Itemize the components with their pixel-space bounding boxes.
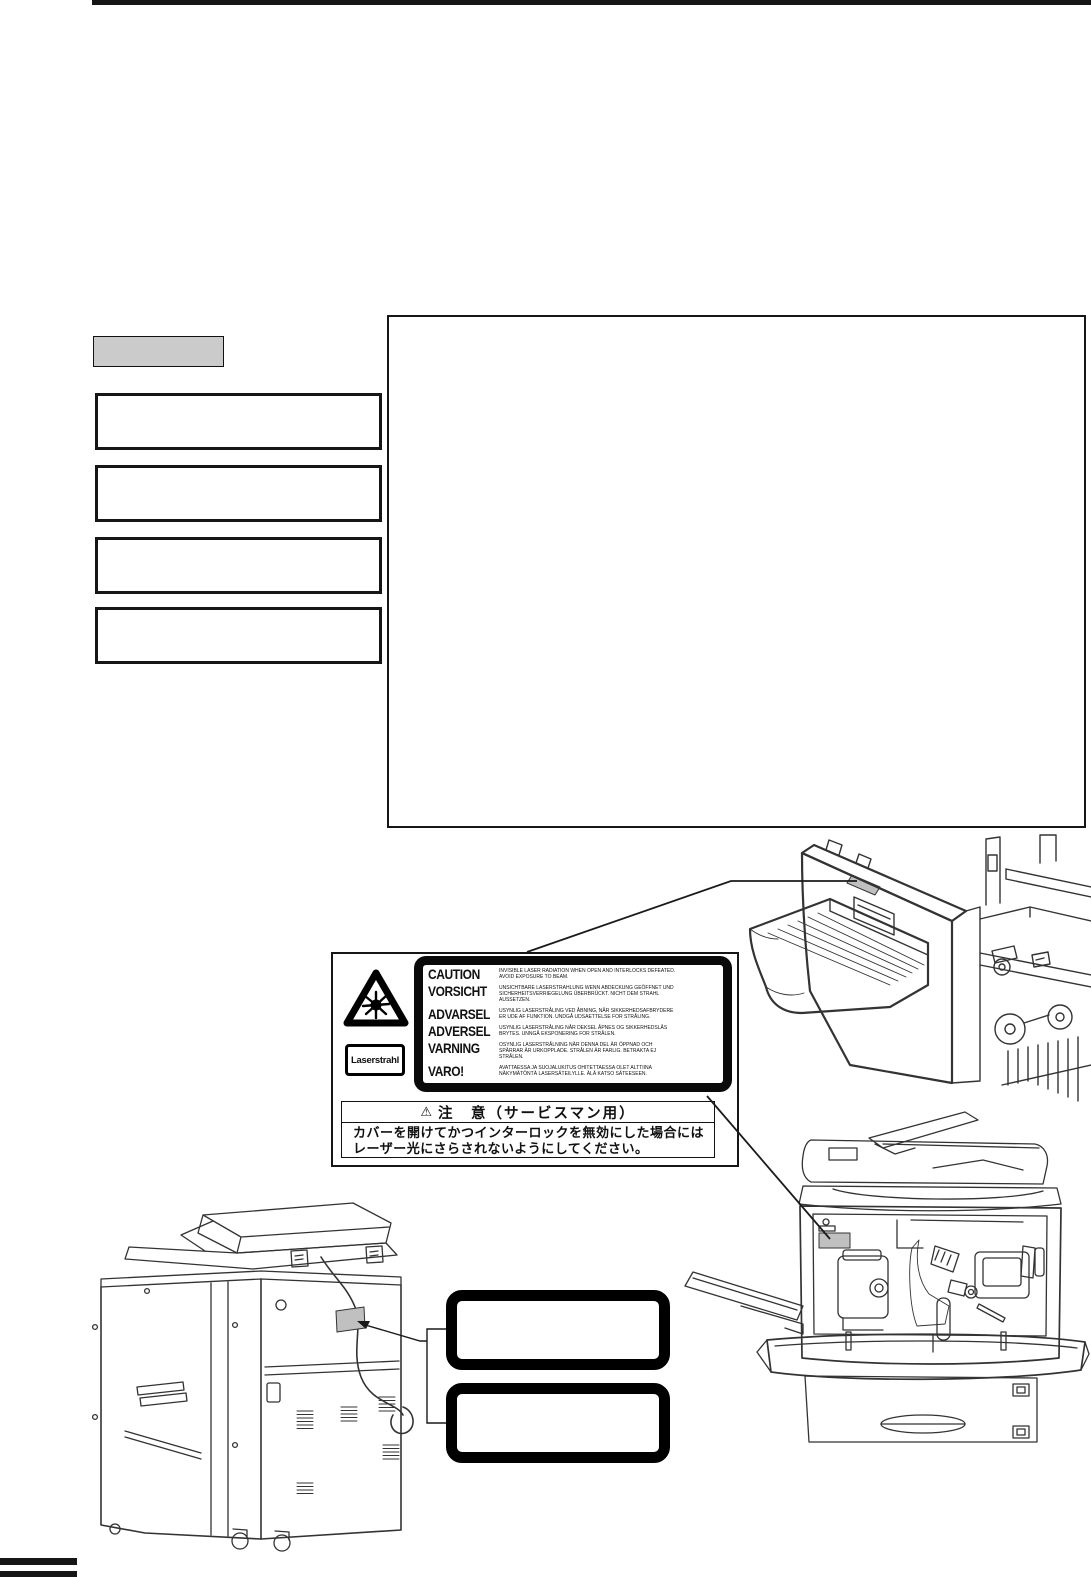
callout-box-2 <box>446 1383 670 1463</box>
service-notice-box: ⚠ 注 意（サービスマン用） カバーを開けてかつインターロックを無効にした場合に… <box>341 1101 715 1158</box>
callout-box-1 <box>446 1290 670 1370</box>
finisher-unit-drawing <box>740 833 1091 1105</box>
label-word: VARNING <box>428 1042 496 1057</box>
label-word: ADVERSEL <box>428 1025 496 1040</box>
label-word: VARO! <box>428 1065 496 1080</box>
label-desc: UNSICHTBARE LASERSTRAHLUNG WENN ABDECKUN… <box>499 985 677 1004</box>
callout-bracket <box>427 1329 446 1423</box>
text-placeholder-box-4 <box>95 607 382 664</box>
label-desc: USYNLIG LASERSTRÅLING VED ÅBNING, NÅR SI… <box>499 1008 677 1021</box>
service-notice-header: ⚠ 注 意（サービスマン用） <box>342 1102 714 1123</box>
laser-caution-label: CAUTION INVISIBLE LASER RADIATION WHEN O… <box>414 956 732 1092</box>
manual-page: Laserstrahl CAUTION INVISIBLE LASER RADI… <box>0 0 1091 1577</box>
label-desc: INVISIBLE LASER RADIATION WHEN OPEN AND … <box>499 968 677 981</box>
copier-front-view-drawing <box>683 1108 1091 1448</box>
copier-rear-view-drawing <box>85 1195 425 1555</box>
label-word: ADVARSEL <box>428 1008 496 1023</box>
label-row: ADVERSEL USYNLIG LASERSTRÅLING NÅR DEKSE… <box>428 1025 721 1038</box>
footer-rule-1 <box>0 1558 77 1565</box>
text-placeholder-box-3 <box>95 537 382 594</box>
label-row: VORSICHT UNSICHTBARE LASERSTRAHLUNG WENN… <box>428 985 721 1004</box>
label-word: VORSICHT <box>428 985 496 1000</box>
label-row: VARNING OSYNLIG LASERSTRÅLNING NÄR DENNA… <box>428 1042 721 1061</box>
laser-caution-label-text: CAUTION INVISIBLE LASER RADIATION WHEN O… <box>423 965 723 1083</box>
content-placeholder-box <box>387 315 1086 828</box>
laser-burst-icon <box>342 968 410 1030</box>
front-warning-label <box>819 1233 850 1248</box>
label-row: ADVARSEL USYNLIG LASERSTRÅLING VED ÅBNIN… <box>428 1008 721 1021</box>
footer-rule-2 <box>0 1571 77 1577</box>
label-row: VARO! AVATTAESSA JA SUOJALUKITUS OHITETT… <box>428 1065 721 1078</box>
label-desc: OSYNLIG LASERSTRÅLNING NÄR DENNA DEL ÄR … <box>499 1042 677 1061</box>
service-notice-body: カバーを開けてかつインターロックを無効にした場合には レーザー光にさらされないよ… <box>342 1123 714 1156</box>
section-heading-placeholder <box>93 336 224 367</box>
warning-triangle-icon: ⚠ <box>420 1104 432 1120</box>
label-desc: USYNLIG LASERSTRÅLING NÅR DEKSEL ÅPNES O… <box>499 1025 677 1038</box>
label-desc: AVATTAESSA JA SUOJALUKITUS OHITETTAESSA … <box>499 1065 677 1078</box>
label-row: CAUTION INVISIBLE LASER RADIATION WHEN O… <box>428 968 721 981</box>
rear-warning-label <box>336 1307 365 1332</box>
text-placeholder-box-2 <box>95 465 382 522</box>
service-notice-title: 注 意（サービスマン用） <box>438 1102 636 1123</box>
service-notice-line: カバーを開けてかつインターロックを無効にした場合には <box>353 1125 714 1141</box>
text-placeholder-box-1 <box>95 393 382 450</box>
label-word: CAUTION <box>428 968 496 983</box>
laserstrahl-badge: Laserstrahl <box>345 1044 405 1076</box>
top-rule <box>92 0 1091 5</box>
service-notice-line: レーザー光にさらされないようにしてください。 <box>353 1141 714 1157</box>
laserstrahl-text: Laserstrahl <box>351 1055 399 1066</box>
